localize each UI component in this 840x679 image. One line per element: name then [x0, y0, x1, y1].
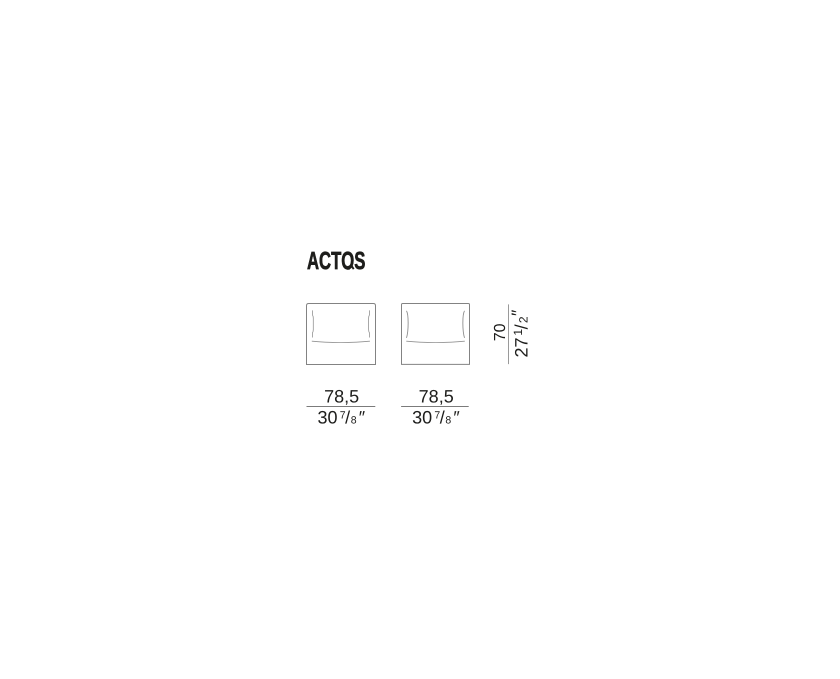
svg-text:78,5: 78,5 — [419, 387, 454, 407]
svg-text:70: 70 — [492, 323, 509, 341]
svg-text:78,5: 78,5 — [324, 387, 359, 407]
